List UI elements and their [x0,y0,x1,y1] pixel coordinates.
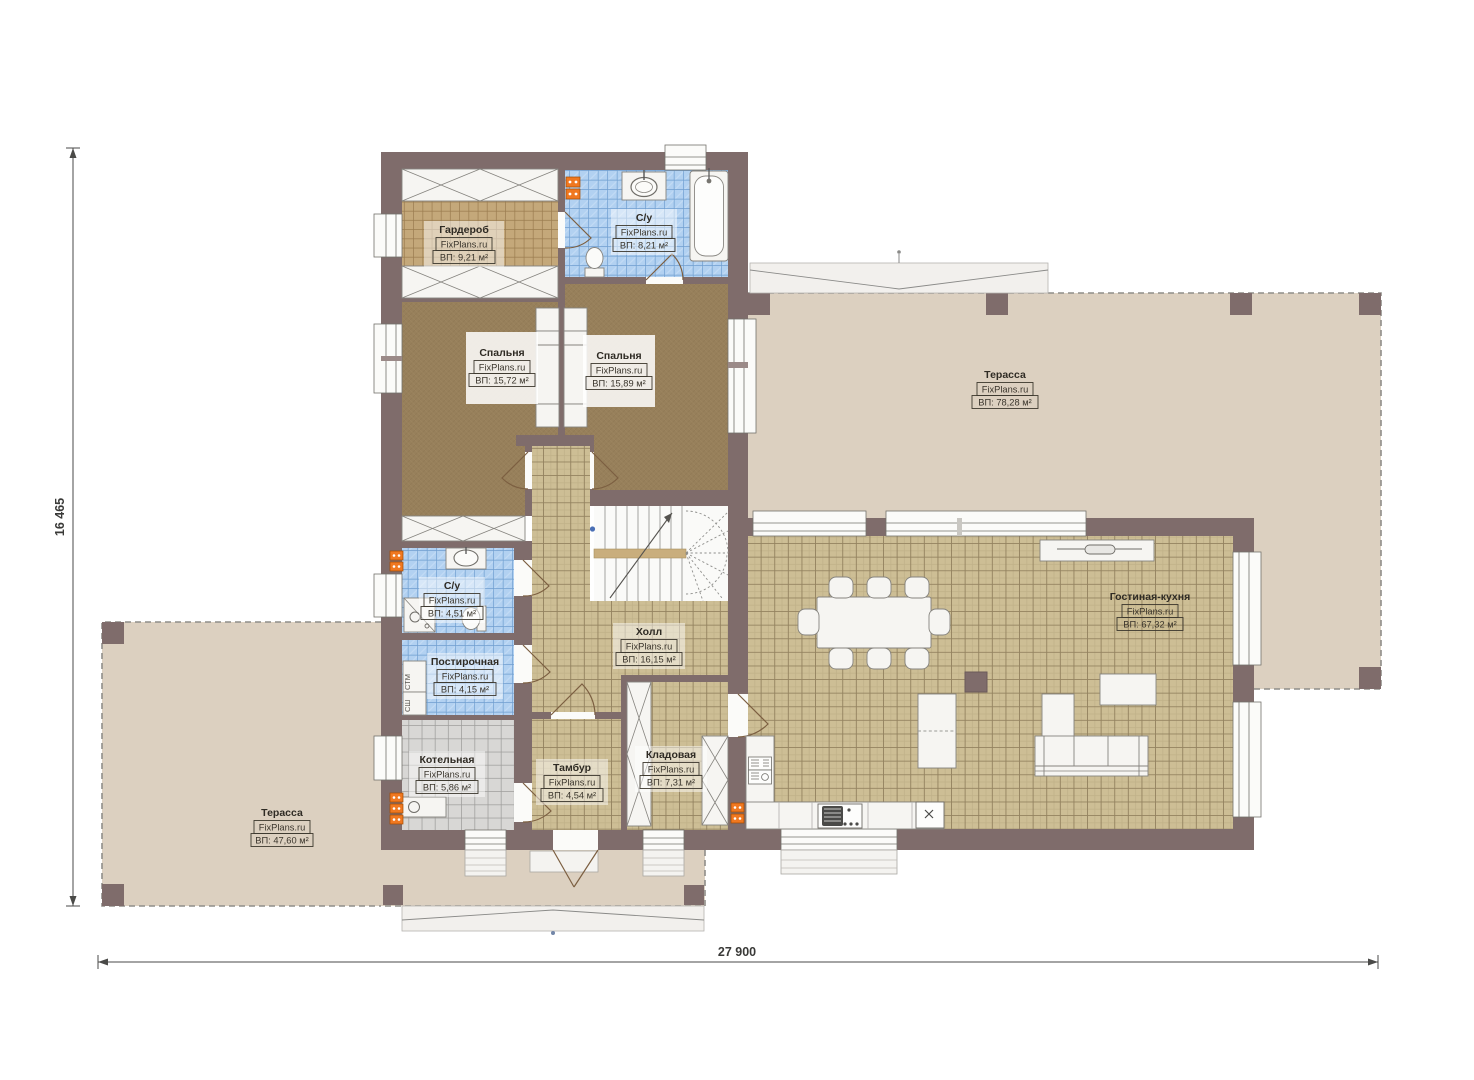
svg-text:FixPlans.ru: FixPlans.ru [596,366,643,376]
svg-text:FixPlans.ru: FixPlans.ru [442,672,489,682]
svg-text:Гардероб: Гардероб [439,224,489,236]
svg-text:С/у: С/у [636,212,653,224]
svg-text:ВП: 47,60 м²: ВП: 47,60 м² [255,836,308,846]
svg-text:Постирочная: Постирочная [431,656,499,668]
svg-text:Гостиная-кухня: Гостиная-кухня [1110,591,1190,603]
svg-text:27 900: 27 900 [718,945,756,959]
svg-text:ВП: 7,31 м²: ВП: 7,31 м² [647,778,695,788]
svg-text:ВП: 4,15 м²: ВП: 4,15 м² [441,685,489,695]
svg-text:FixPlans.ru: FixPlans.ru [479,363,526,373]
svg-text:FixPlans.ru: FixPlans.ru [1127,607,1174,617]
svg-text:ВП: 16,15 м²: ВП: 16,15 м² [622,655,675,665]
svg-text:FixPlans.ru: FixPlans.ru [626,642,673,652]
svg-text:ВП: 5,86 м²: ВП: 5,86 м² [423,783,471,793]
svg-text:ВП: 9,21 м²: ВП: 9,21 м² [440,253,488,263]
svg-text:ВП: 8,21 м²: ВП: 8,21 м² [620,241,668,251]
svg-text:FixPlans.ru: FixPlans.ru [621,228,668,238]
svg-text:FixPlans.ru: FixPlans.ru [259,823,306,833]
svg-text:Спальня: Спальня [596,350,641,362]
svg-text:Тамбур: Тамбур [553,762,591,774]
svg-text:СТМ: СТМ [403,674,412,690]
svg-text:ВП: 4,51 м²: ВП: 4,51 м² [428,609,476,619]
svg-text:ВП: 15,72 м²: ВП: 15,72 м² [475,376,528,386]
svg-text:Котельная: Котельная [420,754,475,766]
svg-text:С/у: С/у [444,580,461,592]
svg-text:ВП: 15,89 м²: ВП: 15,89 м² [592,379,645,389]
svg-text:FixPlans.ru: FixPlans.ru [441,240,488,250]
svg-text:ВП: 67,32 м²: ВП: 67,32 м² [1123,620,1176,630]
svg-text:FixPlans.ru: FixPlans.ru [982,385,1029,395]
svg-text:Терасса: Терасса [261,807,303,819]
svg-text:FixPlans.ru: FixPlans.ru [549,778,596,788]
svg-text:16 465: 16 465 [53,498,67,536]
svg-text:Спальня: Спальня [479,347,524,359]
svg-text:FixPlans.ru: FixPlans.ru [424,770,471,780]
svg-text:FixPlans.ru: FixPlans.ru [648,765,695,775]
svg-text:ВП: 78,28 м²: ВП: 78,28 м² [978,398,1031,408]
svg-text:Кладовая: Кладовая [646,749,696,761]
svg-text:FixPlans.ru: FixPlans.ru [429,596,476,606]
svg-text:Холл: Холл [636,626,662,638]
svg-text:Терасса: Терасса [984,369,1026,381]
svg-text:ВП: 4,54 м²: ВП: 4,54 м² [548,791,596,801]
svg-text:СШ: СШ [403,700,412,712]
